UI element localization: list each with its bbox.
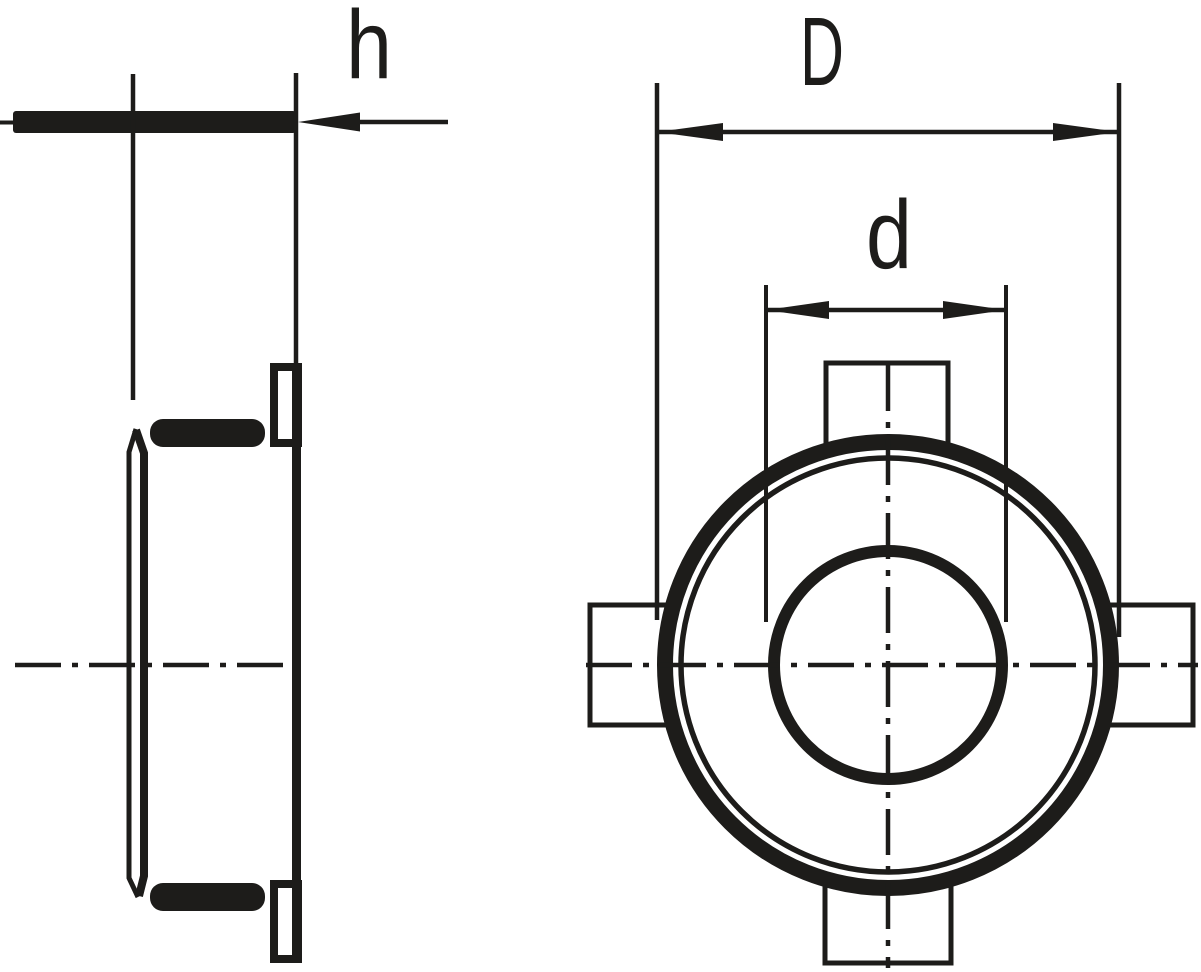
- D-dimension-label: D: [800, 0, 844, 106]
- dimension-drawing-canvas: h D d: [0, 0, 1201, 972]
- side-top-lug: [274, 367, 298, 443]
- D-arrowhead-left: [657, 123, 723, 141]
- h-arrowhead: [298, 113, 360, 132]
- side-bottom-rim: [150, 883, 265, 911]
- side-top-rim: [150, 419, 265, 447]
- technical-drawing: h D d: [0, 0, 1201, 972]
- side-spring-edge-inner: [136, 430, 144, 896]
- side-view: [0, 73, 448, 963]
- D-arrowhead-right: [1053, 123, 1119, 141]
- flat-state-bar: [13, 111, 296, 133]
- d-arrowhead-right: [943, 301, 1006, 319]
- h-dimension-label: h: [346, 0, 392, 99]
- dimension-labels: h D d: [346, 0, 912, 289]
- d-dimension-label: d: [866, 180, 912, 289]
- side-bottom-lug: [274, 884, 298, 959]
- d-arrowhead-left: [766, 301, 829, 319]
